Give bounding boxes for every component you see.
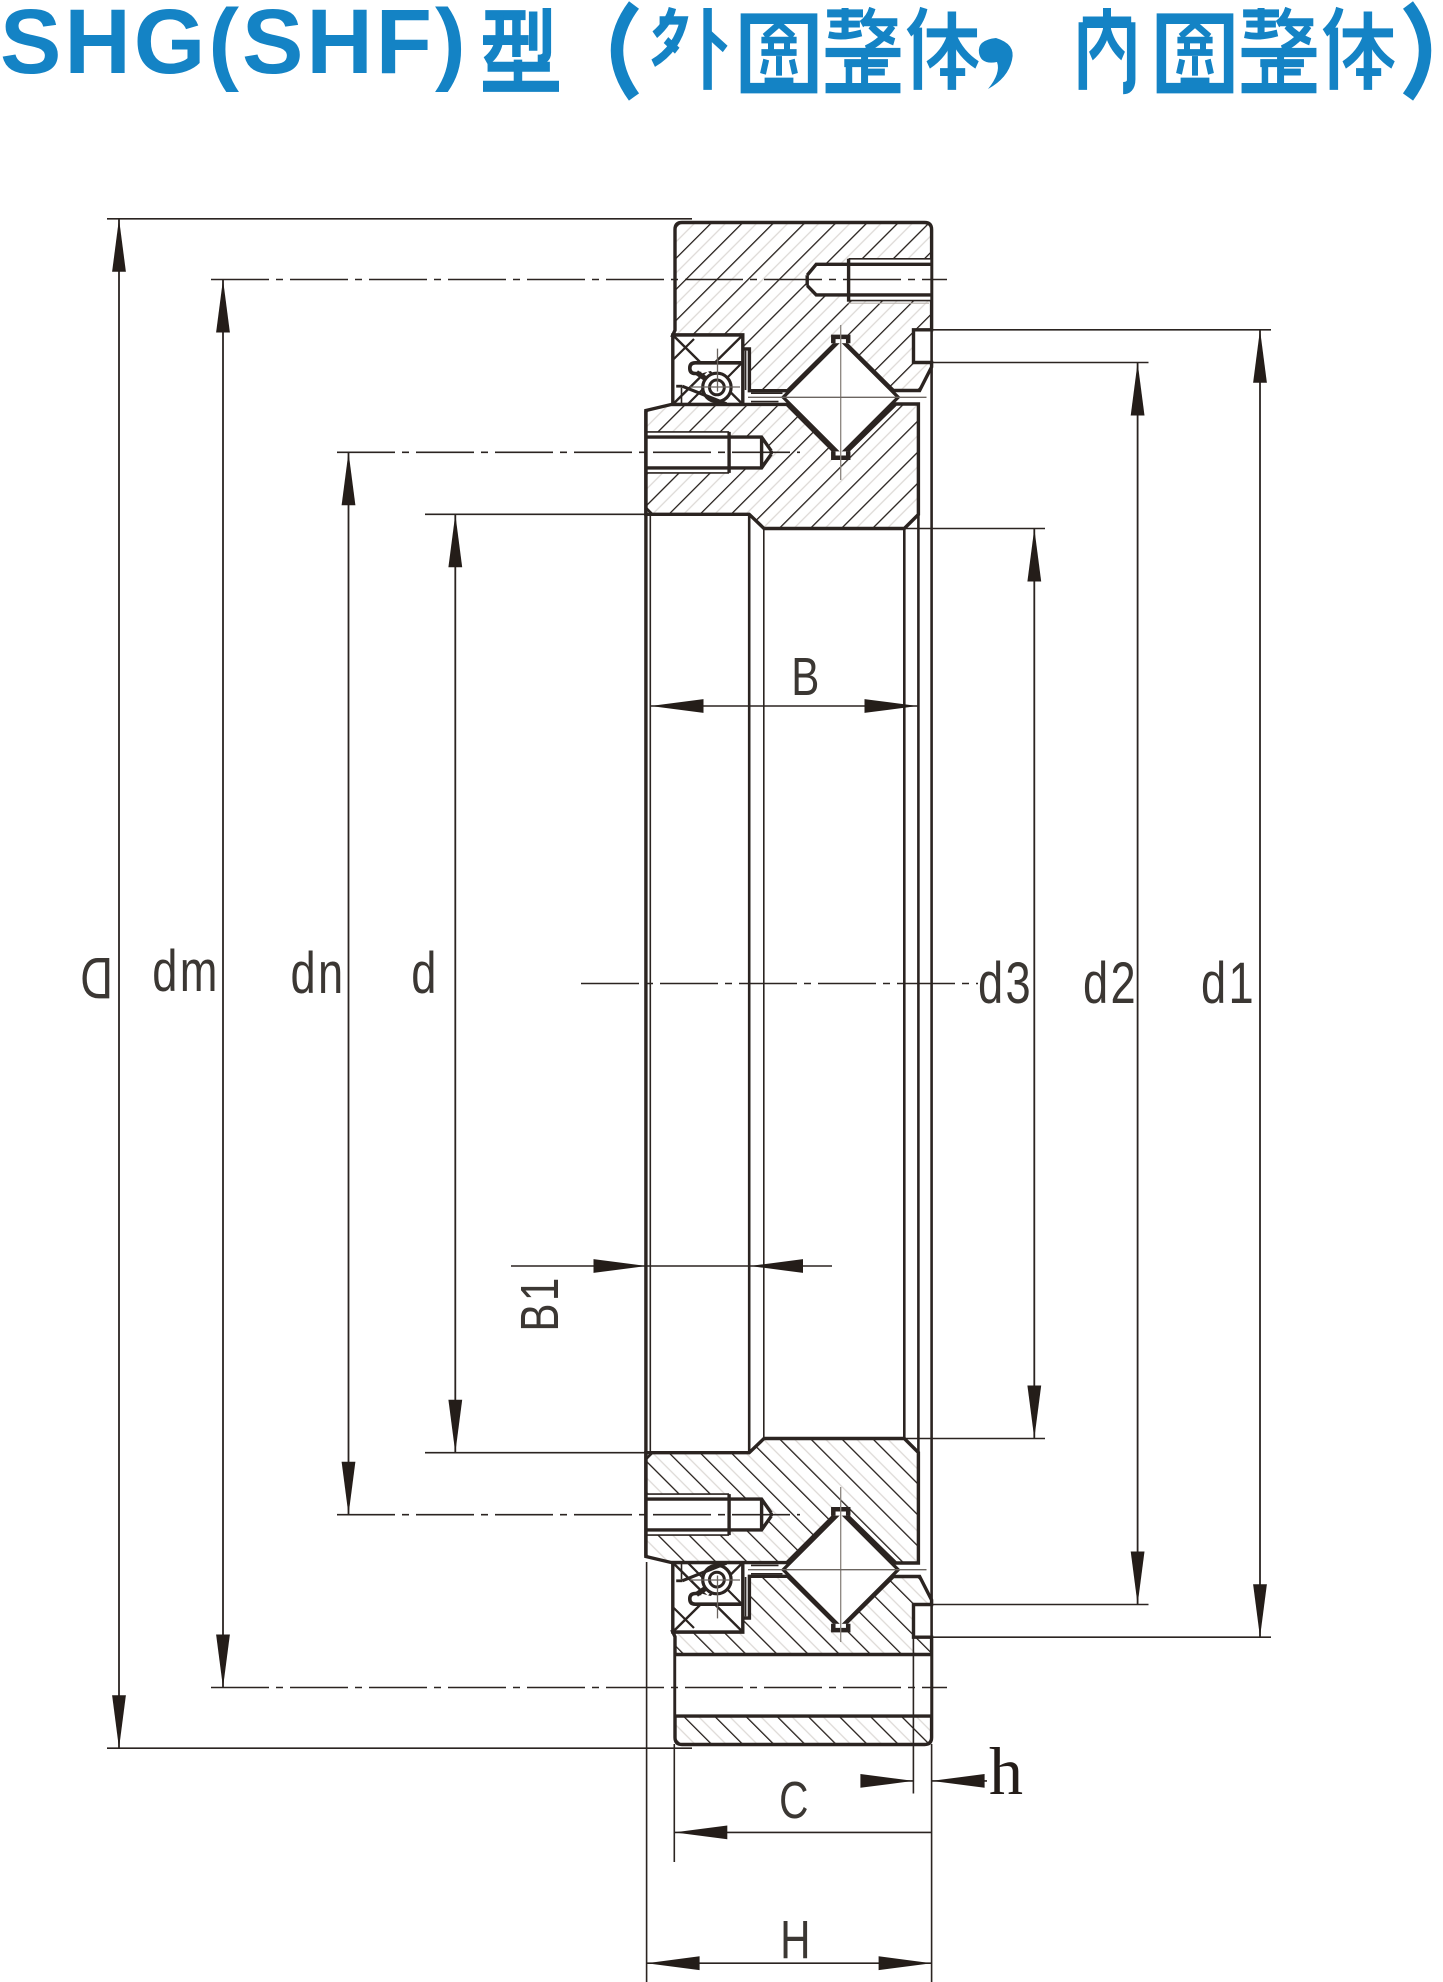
svg-text:C: C xyxy=(779,1771,811,1829)
svg-text:SHG(SHF): SHG(SHF) xyxy=(0,0,469,93)
svg-text:d: d xyxy=(411,942,439,1007)
svg-text:d3: d3 xyxy=(978,952,1033,1017)
svg-text:B: B xyxy=(791,647,821,707)
svg-text:h: h xyxy=(989,1733,1023,1809)
svg-text:dn: dn xyxy=(290,942,345,1007)
svg-text:d1: d1 xyxy=(1201,952,1256,1017)
svg-text:D: D xyxy=(78,945,113,1010)
svg-text:dm: dm xyxy=(152,940,220,1005)
svg-text:d2: d2 xyxy=(1083,952,1138,1017)
svg-text:H: H xyxy=(780,1910,813,1970)
svg-text:B1: B1 xyxy=(510,1275,570,1331)
